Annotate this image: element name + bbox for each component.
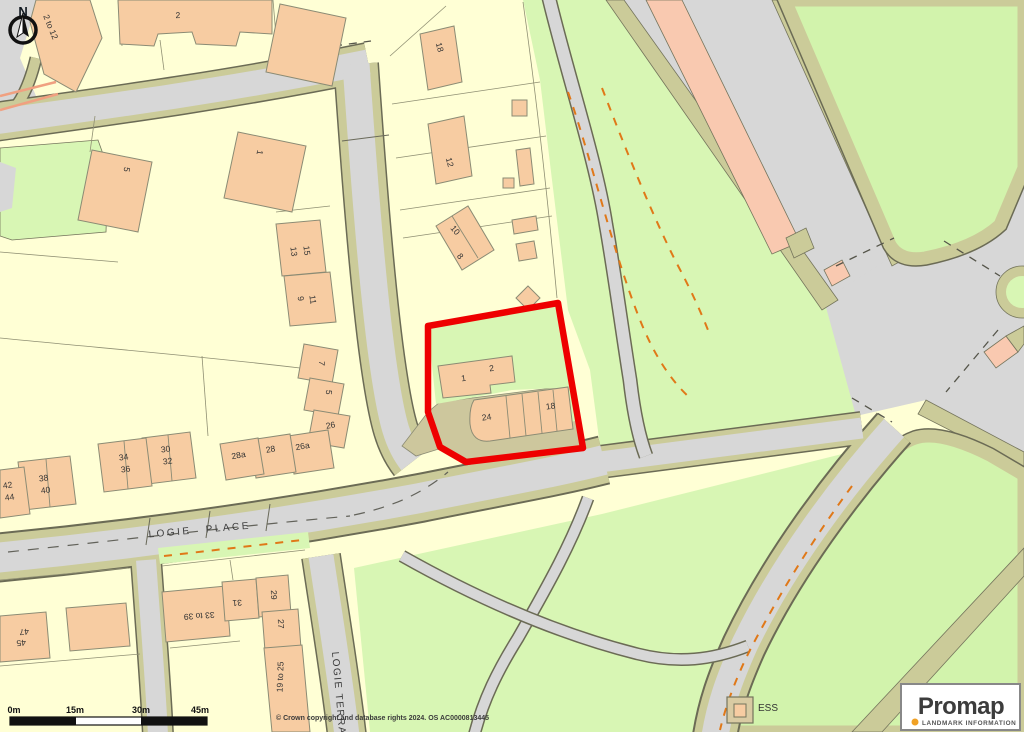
building-label: 34	[118, 451, 129, 462]
building-label: 45	[16, 638, 26, 649]
outbuilding	[516, 241, 537, 261]
promap-logo: Promap LANDMARK INFORMATION	[901, 684, 1020, 730]
building	[276, 220, 326, 276]
logo-brand: Promap	[918, 693, 1004, 720]
scale-tick-label: 15m	[66, 705, 84, 715]
building-label: 30	[160, 443, 171, 454]
logo-dot-icon	[912, 719, 919, 726]
building-label: 32	[162, 455, 173, 466]
building-label: 44	[4, 491, 15, 502]
scale-tick-label: 45m	[191, 705, 209, 715]
north-label: N	[18, 4, 27, 19]
scale-tick-label: 30m	[132, 705, 150, 715]
substation-inner	[734, 704, 746, 717]
building-label: 13	[288, 246, 299, 257]
plot-unit-label: 18	[545, 400, 556, 411]
ess-label: ESS	[758, 703, 778, 714]
building-label: 47	[19, 627, 29, 638]
scale-tick-label: 0m	[7, 705, 20, 715]
copyright-text: © Crown copyright and database rights 20…	[276, 714, 489, 722]
building	[266, 4, 346, 86]
building-label: 31	[232, 598, 242, 609]
building-label: 42	[2, 479, 13, 490]
map-canvas: ESS 2 to 12 2 5 1 13 15 9 11 7 5 26 26a …	[0, 0, 1024, 732]
building-label: 28	[265, 443, 276, 455]
building	[304, 378, 344, 416]
plot-unit-label: 24	[481, 411, 492, 422]
building-label: 36	[120, 463, 131, 474]
building-label: 29	[269, 590, 279, 600]
building	[428, 116, 472, 184]
building-label: 40	[40, 484, 51, 495]
scale-bar-segment	[10, 717, 76, 725]
building	[78, 150, 152, 232]
building-label: 27	[276, 619, 286, 629]
building-label: 11	[307, 295, 318, 305]
building	[224, 132, 306, 212]
building-label: 15	[301, 245, 312, 256]
building	[262, 609, 301, 651]
logo-subtitle: LANDMARK INFORMATION	[922, 720, 1016, 727]
outbuilding	[512, 100, 527, 116]
building	[420, 26, 462, 90]
scale-bar-segment	[141, 717, 207, 725]
building	[66, 603, 130, 651]
building-label: 2	[175, 10, 180, 20]
outbuilding	[503, 178, 514, 188]
building-label: 38	[38, 472, 49, 483]
building-label: 26	[325, 419, 336, 431]
building-label: 19 to 25	[274, 661, 285, 692]
selected-plot	[402, 303, 583, 462]
os-map: ESS 2 to 12 2 5 1 13 15 9 11 7 5 26 26a …	[0, 0, 1024, 732]
